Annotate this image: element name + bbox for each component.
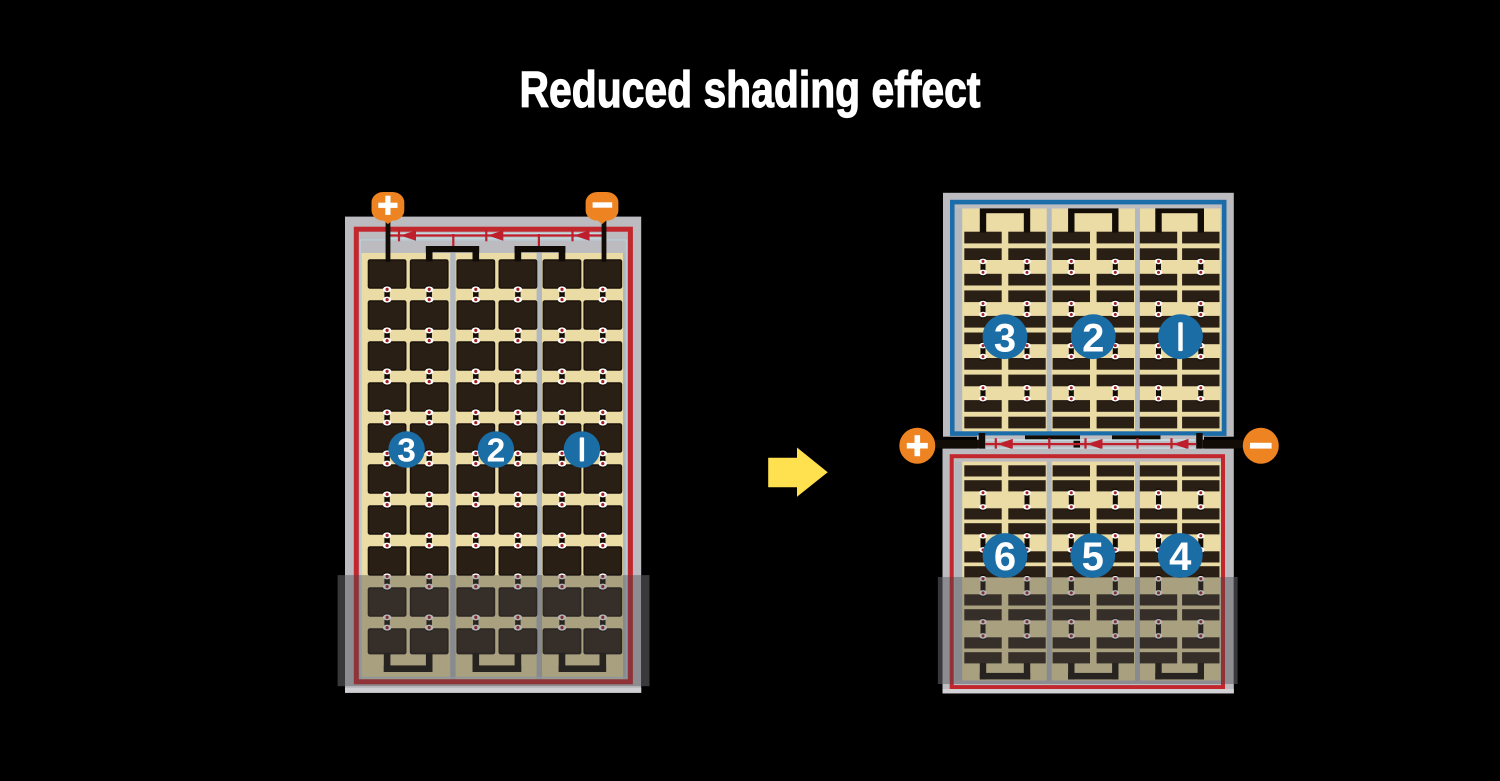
svg-text:6: 6 [994, 535, 1016, 579]
svg-text:Reduced shading effect: Reduced shading effect [520, 61, 981, 118]
svg-text:3: 3 [994, 316, 1016, 360]
svg-text:2: 2 [1082, 316, 1104, 360]
svg-text:5: 5 [1082, 535, 1104, 579]
svg-text:3: 3 [397, 432, 416, 469]
svg-text:2: 2 [487, 432, 506, 469]
svg-text:4: 4 [1169, 535, 1192, 579]
